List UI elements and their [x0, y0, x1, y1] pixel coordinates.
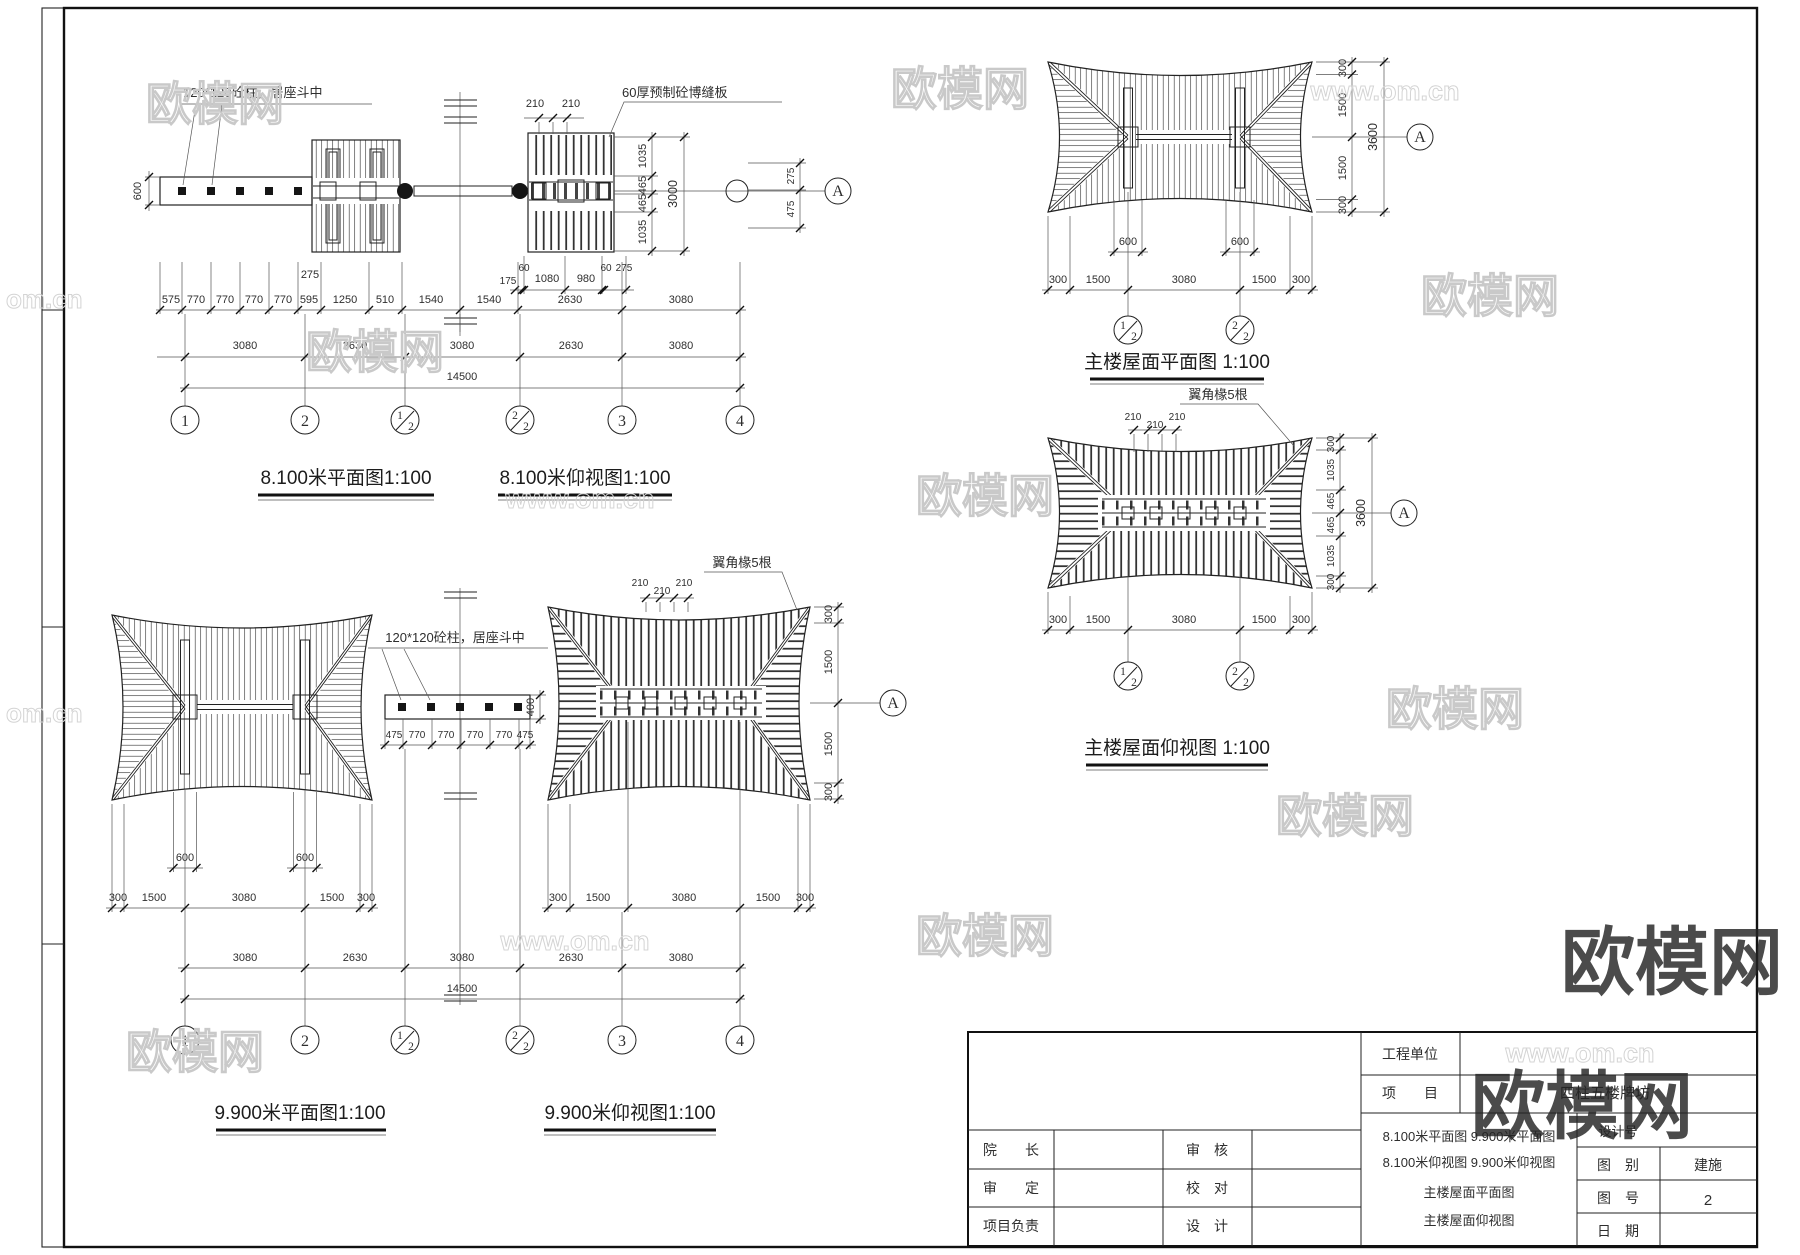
svg-text:300: 300	[1326, 435, 1337, 452]
svg-text:2: 2	[408, 1041, 414, 1053]
svg-text:465: 465	[1326, 492, 1337, 509]
svg-text:175: 175	[500, 276, 517, 287]
svg-text:465: 465	[637, 194, 649, 212]
break-symbol	[444, 100, 477, 324]
title-roof-bottom: 主楼屋面仰视图 1:100	[1084, 737, 1270, 770]
svg-text:3080: 3080	[450, 952, 474, 964]
field-proofread: 校 对	[1186, 1180, 1228, 1196]
cad-drawing-canvas: A 120*120砼柱，居座斗中 60厚预制砼博缝板 210 210 600 1…	[0, 0, 1800, 1255]
svg-text:60: 60	[600, 263, 612, 274]
svg-text:1: 1	[181, 413, 189, 430]
svg-text:1035: 1035	[637, 220, 649, 244]
section-mark-a: A	[1391, 500, 1417, 526]
roof-plan-view: 600 600 300 1500 3080 1500 300 300 1500 …	[1042, 57, 1433, 384]
corner-rafter-label: 翼角椽5根	[704, 555, 797, 610]
grid-bubbles-roof-plan: 12 22	[1114, 294, 1254, 344]
section-mark-a: A	[1407, 124, 1433, 150]
watermark-logo: 欧模网	[126, 1026, 264, 1078]
svg-text:1500: 1500	[1086, 614, 1110, 626]
svg-text:275: 275	[616, 263, 633, 274]
dims-right: 300 1500 1500 300	[810, 602, 880, 804]
svg-text:465: 465	[1326, 516, 1337, 533]
dims-210: 210 210 210	[1125, 412, 1186, 452]
grid-bubbles-roof-bottom: 12 22	[1114, 634, 1254, 690]
svg-text:300: 300	[1337, 59, 1349, 77]
svg-text:1500: 1500	[823, 732, 835, 756]
dims-beam: 475 770 770 770 770 475	[380, 719, 536, 749]
dims-bottom-left: 300 1500 3080 1500 300	[106, 790, 378, 912]
board-leader-label: 60厚预制砼博缝板	[609, 85, 782, 137]
svg-text:210: 210	[1125, 412, 1142, 423]
watermark-url: www.om.cn	[1309, 76, 1459, 106]
svg-text:2: 2	[512, 410, 518, 422]
field-review: 审 核	[1186, 1142, 1228, 1158]
svg-text:300: 300	[1292, 614, 1310, 626]
svg-text:2: 2	[523, 1041, 529, 1053]
title-9900-bottom: 9.900米仰视图1:100	[544, 1102, 716, 1135]
svg-text:1: 1	[1120, 320, 1126, 332]
svg-text:475: 475	[386, 730, 403, 741]
section-mark-a: A	[880, 690, 906, 716]
watermark-logo: 欧模网	[916, 470, 1054, 522]
svg-text:465: 465	[637, 176, 649, 194]
svg-text:770: 770	[409, 730, 426, 741]
svg-text:1540: 1540	[477, 294, 501, 306]
svg-text:3080: 3080	[1172, 614, 1196, 626]
svg-text:3080: 3080	[450, 340, 474, 352]
svg-text:2: 2	[523, 421, 529, 433]
drawing-name: 主楼屋面仰视图	[1423, 1213, 1514, 1228]
svg-text:770: 770	[496, 730, 513, 741]
svg-text:4: 4	[736, 413, 744, 430]
dims-right-chain: 1035 465 465 1035 3000	[614, 132, 690, 256]
svg-text:210: 210	[654, 586, 671, 597]
svg-text:主楼屋面平面图 1:100: 主楼屋面平面图 1:100	[1084, 351, 1270, 373]
svg-text:2630: 2630	[559, 340, 583, 352]
svg-text:1250: 1250	[333, 294, 357, 306]
svg-text:575: 575	[162, 294, 180, 306]
svg-text:210: 210	[632, 578, 649, 589]
watermark-logo: 欧模网	[1386, 683, 1524, 735]
dims-210: 210 210 210	[632, 578, 694, 612]
svg-text:3000: 3000	[666, 180, 680, 208]
watermark-logo: 欧模网	[1276, 790, 1414, 842]
watermark-url: www.om.cn	[1504, 1038, 1654, 1068]
svg-text:475: 475	[517, 730, 534, 741]
svg-text:210: 210	[1147, 420, 1164, 431]
watermark-url: www.om.cn	[504, 484, 654, 514]
svg-text:600: 600	[132, 182, 144, 200]
svg-text:475: 475	[786, 200, 797, 217]
svg-text:770: 770	[274, 294, 292, 306]
svg-text:3: 3	[618, 413, 626, 430]
svg-text:1500: 1500	[1252, 614, 1276, 626]
svg-text:300: 300	[1049, 274, 1067, 286]
section-mark-a: A	[825, 178, 851, 204]
roof-9900-plan	[112, 613, 372, 802]
svg-text:3080: 3080	[232, 892, 256, 904]
svg-text:770: 770	[187, 294, 205, 306]
dims-right: 300 1035 465 465 1035 300 3600	[1312, 433, 1391, 593]
dims-total: 14500	[180, 361, 745, 406]
watermark-logo-dark: 欧模网	[1471, 1065, 1693, 1148]
column-joint	[512, 183, 528, 199]
sheet-no-value: 2	[1704, 1192, 1712, 1209]
svg-text:400: 400	[525, 698, 537, 716]
svg-text:300: 300	[823, 605, 835, 623]
watermarks: 欧模网 欧模网 欧模网 欧模网 欧模网 欧模网 欧模网 欧模网 欧模网 www.…	[6, 63, 1783, 1148]
dim-275: 275	[301, 269, 319, 281]
svg-text:1500: 1500	[1252, 274, 1276, 286]
roof-9900-bottom	[548, 605, 810, 802]
svg-text:9.900米仰视图1:100: 9.900米仰视图1:100	[544, 1102, 715, 1124]
dims-bottom: 300 1500 3080 1500 300	[1042, 192, 1318, 294]
field-project-lead: 项目负责	[983, 1218, 1039, 1234]
field-director: 院 长	[983, 1142, 1039, 1158]
svg-text:2: 2	[1131, 331, 1137, 343]
svg-text:210: 210	[526, 98, 544, 110]
dims-row1: 575 770 770 770 770 595 1250 510 1540 15…	[156, 262, 746, 336]
roof-bottom-view: 翼角椽5根 210 210 210 300 1035 465 465 1035 …	[1042, 387, 1417, 770]
view-8100: A 120*120砼柱，居座斗中 60厚预制砼博缝板 210 210 600 1…	[132, 85, 851, 500]
field-sheet-no: 图 号	[1597, 1190, 1639, 1206]
svg-text:8.100米平面图1:100: 8.100米平面图1:100	[260, 467, 431, 489]
svg-text:1500: 1500	[756, 892, 780, 904]
svg-text:3080: 3080	[669, 952, 693, 964]
svg-text:3080: 3080	[672, 892, 696, 904]
svg-text:1: 1	[397, 1030, 403, 1042]
svg-text:14500: 14500	[447, 371, 478, 383]
cad-sheet: A 120*120砼柱，居座斗中 60厚预制砼博缝板 210 210 600 1…	[0, 0, 1800, 1255]
watermark-logo: 欧模网	[891, 63, 1029, 115]
watermark-logo: 欧模网	[916, 910, 1054, 962]
svg-text:300: 300	[109, 892, 127, 904]
svg-text:3600: 3600	[1354, 499, 1368, 527]
svg-text:510: 510	[376, 294, 394, 306]
field-design: 设 计	[1186, 1218, 1228, 1234]
svg-text:1035: 1035	[1326, 458, 1337, 481]
svg-text:2: 2	[301, 413, 309, 430]
beam-9900	[385, 695, 530, 719]
svg-text:300: 300	[796, 892, 814, 904]
svg-text:2630: 2630	[558, 294, 582, 306]
svg-text:300: 300	[549, 892, 567, 904]
svg-text:2: 2	[408, 421, 414, 433]
svg-text:770: 770	[467, 730, 484, 741]
svg-text:1500: 1500	[823, 650, 835, 674]
watermark-url: om.cn	[6, 284, 83, 314]
svg-text:1: 1	[397, 410, 403, 422]
svg-text:770: 770	[216, 294, 234, 306]
title-roof-plan: 主楼屋面平面图 1:100	[1084, 351, 1270, 384]
dims-row2: 3080 2630 3080 2630 3080	[157, 314, 746, 361]
title-8100-plan: 8.100米平面图1:100	[258, 467, 434, 500]
svg-text:4: 4	[736, 1033, 744, 1050]
svg-text:300: 300	[1292, 274, 1310, 286]
svg-text:2: 2	[301, 1033, 309, 1050]
field-approval: 审 定	[983, 1180, 1039, 1196]
hatched-tie-rod	[414, 186, 512, 196]
svg-text:3080: 3080	[233, 340, 257, 352]
dims-600: 600 600	[167, 792, 323, 872]
svg-text:2: 2	[1232, 320, 1238, 332]
svg-text:595: 595	[300, 294, 318, 306]
watermark-logo-dark: 欧模网	[1561, 921, 1783, 1004]
svg-text:1500: 1500	[1337, 156, 1349, 180]
watermark-logo: 欧模网	[146, 78, 284, 130]
svg-text:210: 210	[1169, 412, 1186, 423]
column-joint	[397, 183, 413, 199]
svg-text:210: 210	[676, 578, 693, 589]
dim-beam-600: 600	[132, 171, 160, 211]
svg-text:3080: 3080	[669, 340, 693, 352]
drawing-name: 主楼屋面平面图	[1423, 1185, 1514, 1200]
grid-bubbles-8100: 1 2 12 22 3 4	[171, 406, 754, 434]
svg-text:2: 2	[512, 1030, 518, 1042]
svg-text:A: A	[1414, 129, 1426, 146]
svg-text:210: 210	[562, 98, 580, 110]
svg-text:300: 300	[1049, 614, 1067, 626]
svg-text:9.900米平面图1:100: 9.900米平面图1:100	[214, 1102, 385, 1124]
svg-text:300: 300	[823, 783, 835, 801]
svg-text:1500: 1500	[320, 892, 344, 904]
svg-text:3080: 3080	[669, 294, 693, 306]
field-category: 图 别	[1597, 1157, 1639, 1173]
dims-600: 600 600	[1108, 200, 1260, 256]
svg-text:1035: 1035	[1326, 544, 1337, 567]
svg-text:A: A	[1398, 505, 1410, 522]
svg-text:275: 275	[786, 167, 797, 184]
field-date: 日 期	[1597, 1223, 1639, 1239]
svg-text:14500: 14500	[447, 983, 478, 995]
dims-210: 210 210	[524, 98, 584, 134]
corner-rafter-label: 翼角椽5根	[1180, 387, 1294, 446]
svg-text:3080: 3080	[1172, 274, 1196, 286]
category-value: 建施	[1694, 1157, 1722, 1173]
svg-text:3600: 3600	[1366, 123, 1380, 151]
svg-text:1080: 1080	[535, 273, 559, 285]
svg-text:770: 770	[438, 730, 455, 741]
svg-text:2: 2	[1243, 677, 1249, 689]
svg-text:A: A	[887, 695, 899, 712]
tower-bottom-view	[528, 133, 614, 252]
title-9900-plan: 9.900米平面图1:100	[214, 1102, 386, 1135]
watermark-logo: 欧模网	[306, 326, 444, 378]
dims-sub-chain: 175 60 1080 980 60 275	[500, 256, 634, 294]
svg-text:2: 2	[1131, 677, 1137, 689]
svg-text:1500: 1500	[586, 892, 610, 904]
svg-text:1035: 1035	[637, 144, 649, 168]
dims-total: 14500	[180, 972, 745, 1026]
svg-text:翼角椽5根: 翼角椽5根	[712, 555, 771, 570]
svg-text:3: 3	[618, 1033, 626, 1050]
svg-text:3080: 3080	[233, 952, 257, 964]
svg-text:300: 300	[1337, 196, 1349, 214]
watermark-logo: 欧模网	[1421, 270, 1559, 322]
svg-text:2: 2	[1232, 666, 1238, 678]
svg-text:1: 1	[1120, 666, 1126, 678]
svg-text:1500: 1500	[142, 892, 166, 904]
column-leader-label: 120*120砼柱，居座斗中	[368, 630, 548, 700]
svg-text:1500: 1500	[1086, 274, 1110, 286]
svg-text:120*120砼柱，居座斗中: 120*120砼柱，居座斗中	[385, 630, 524, 645]
field-project: 项 目	[1382, 1085, 1438, 1101]
svg-text:60厚预制砼博缝板: 60厚预制砼博缝板	[622, 85, 727, 100]
drawing-name: 8.100米仰视图 9.900米仰视图	[1383, 1155, 1556, 1170]
watermark-url: www.om.cn	[499, 926, 649, 956]
beam-8100	[160, 177, 312, 205]
dims-end-chain: 275 475	[748, 158, 806, 233]
svg-text:770: 770	[245, 294, 263, 306]
svg-text:2: 2	[1243, 331, 1249, 343]
svg-text:翼角椽5根: 翼角椽5根	[1188, 387, 1247, 402]
svg-text:主楼屋面仰视图 1:100: 主楼屋面仰视图 1:100	[1084, 737, 1270, 759]
svg-text:300: 300	[1326, 573, 1337, 590]
watermark-url: om.cn	[6, 698, 83, 728]
svg-text:1540: 1540	[419, 294, 443, 306]
section-letter: A	[832, 183, 844, 200]
break-symbol	[444, 592, 477, 1001]
svg-text:980: 980	[577, 273, 595, 285]
svg-text:60: 60	[518, 263, 530, 274]
field-engineering-unit: 工程单位	[1382, 1046, 1438, 1062]
svg-text:300: 300	[357, 892, 375, 904]
tower-plan	[312, 140, 400, 252]
svg-text:2630: 2630	[343, 952, 367, 964]
